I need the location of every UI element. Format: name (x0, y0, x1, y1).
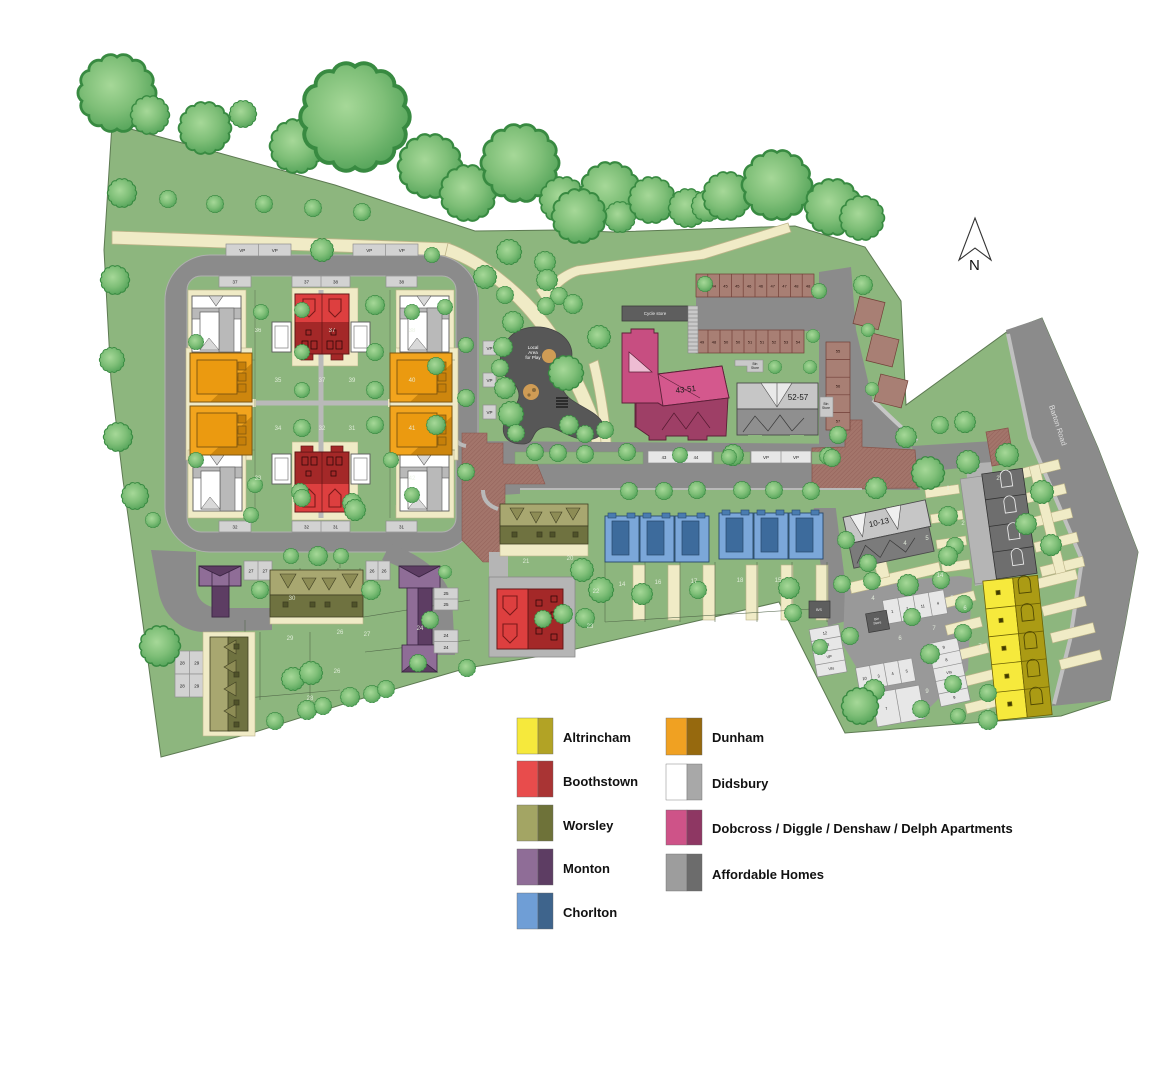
svg-text:48: 48 (712, 339, 717, 344)
svg-text:26: 26 (337, 630, 344, 636)
svg-text:24: 24 (443, 633, 449, 638)
svg-text:26: 26 (381, 568, 387, 573)
svg-text:37: 37 (319, 378, 326, 384)
svg-text:46: 46 (759, 283, 764, 288)
svg-text:Dunham: Dunham (712, 730, 764, 745)
svg-text:38: 38 (399, 279, 405, 284)
svg-text:Worsley: Worsley (563, 818, 614, 833)
svg-text:27: 27 (364, 632, 371, 638)
svg-text:37: 37 (304, 279, 310, 284)
svg-text:VP: VP (366, 248, 372, 253)
svg-text:25: 25 (443, 591, 449, 596)
svg-text:Cycle store: Cycle store (644, 311, 667, 316)
svg-text:B/S: B/S (816, 608, 822, 612)
svg-text:49: 49 (700, 339, 705, 344)
svg-text:38: 38 (409, 328, 416, 334)
svg-text:32: 32 (319, 426, 326, 432)
svg-text:28: 28 (180, 683, 186, 688)
svg-text:48: 48 (794, 283, 799, 288)
svg-text:51: 51 (760, 339, 765, 344)
svg-text:27: 27 (262, 568, 268, 573)
svg-text:50: 50 (736, 339, 741, 344)
svg-text:44: 44 (694, 455, 699, 460)
svg-text:N: N (969, 257, 980, 274)
svg-text:28: 28 (180, 660, 186, 665)
svg-text:14: 14 (619, 582, 626, 588)
svg-text:VP: VP (239, 248, 245, 253)
svg-text:31: 31 (349, 426, 356, 432)
svg-text:23: 23 (587, 624, 594, 630)
svg-text:VP: VP (763, 455, 769, 460)
svg-text:24: 24 (417, 626, 424, 632)
svg-text:40: 40 (409, 378, 416, 384)
svg-text:52: 52 (772, 339, 777, 344)
svg-text:Altrincham: Altrincham (563, 730, 631, 745)
svg-text:43: 43 (662, 455, 667, 460)
svg-text:VP: VP (486, 378, 492, 383)
svg-text:38: 38 (333, 279, 339, 284)
svg-text:47: 47 (770, 283, 775, 288)
svg-text:Affordable Homes: Affordable Homes (712, 867, 824, 882)
svg-text:VP: VP (399, 248, 405, 253)
svg-text:22: 22 (593, 589, 600, 595)
svg-text:30: 30 (289, 596, 296, 602)
svg-text:52-57: 52-57 (788, 393, 809, 402)
svg-text:Store: Store (822, 406, 830, 410)
svg-text:35: 35 (275, 378, 282, 384)
svg-text:36: 36 (255, 328, 262, 334)
svg-text:Store: Store (751, 366, 759, 370)
svg-text:57: 57 (836, 419, 841, 424)
svg-text:VP: VP (486, 410, 492, 415)
svg-text:18: 18 (737, 578, 744, 584)
svg-text:Chorlton: Chorlton (563, 905, 617, 920)
svg-text:47: 47 (782, 283, 787, 288)
svg-text:26: 26 (334, 669, 341, 675)
svg-text:VP: VP (486, 346, 492, 351)
svg-text:15: 15 (775, 578, 782, 584)
svg-text:29: 29 (287, 636, 294, 642)
svg-text:41: 41 (409, 426, 416, 432)
svg-text:14: 14 (937, 573, 944, 579)
svg-text:45: 45 (723, 283, 728, 288)
svg-text:20: 20 (567, 556, 574, 562)
svg-text:Monton: Monton (563, 861, 610, 876)
svg-text:55: 55 (836, 348, 841, 353)
svg-text:Didsbury: Didsbury (712, 776, 769, 791)
svg-text:46: 46 (747, 283, 752, 288)
svg-text:34: 34 (275, 426, 282, 432)
svg-text:42: 42 (409, 476, 416, 482)
svg-text:37: 37 (329, 328, 336, 334)
svg-text:21: 21 (523, 559, 530, 565)
svg-text:32: 32 (232, 524, 238, 529)
svg-text:Boothstown: Boothstown (563, 774, 638, 789)
svg-text:50: 50 (724, 339, 729, 344)
svg-text:29: 29 (194, 660, 200, 665)
svg-text:25: 25 (443, 602, 449, 607)
svg-text:VP: VP (272, 248, 278, 253)
svg-text:45: 45 (735, 283, 740, 288)
svg-text:48: 48 (806, 283, 811, 288)
svg-text:53: 53 (784, 339, 789, 344)
svg-text:VP: VP (793, 455, 799, 460)
svg-text:56: 56 (836, 384, 841, 389)
svg-text:26: 26 (369, 568, 375, 573)
svg-text:31: 31 (333, 524, 339, 529)
svg-text:24: 24 (443, 645, 449, 650)
svg-text:27: 27 (248, 568, 254, 573)
svg-text:51: 51 (748, 339, 753, 344)
svg-text:33: 33 (255, 476, 262, 482)
svg-text:17: 17 (691, 579, 698, 585)
svg-text:32: 32 (304, 524, 310, 529)
svg-text:28: 28 (307, 696, 314, 702)
svg-text:VIs: VIs (828, 665, 835, 671)
svg-text:Dobcross / Diggle / Denshaw /: Dobcross / Diggle / Denshaw / Delph Apar… (712, 821, 1013, 836)
svg-text:29: 29 (194, 683, 200, 688)
svg-text:54: 54 (796, 339, 801, 344)
svg-text:for Play: for Play (525, 355, 541, 360)
svg-text:37: 37 (232, 279, 238, 284)
svg-text:39: 39 (349, 378, 356, 384)
svg-text:16: 16 (655, 580, 662, 586)
svg-text:31: 31 (399, 524, 405, 529)
